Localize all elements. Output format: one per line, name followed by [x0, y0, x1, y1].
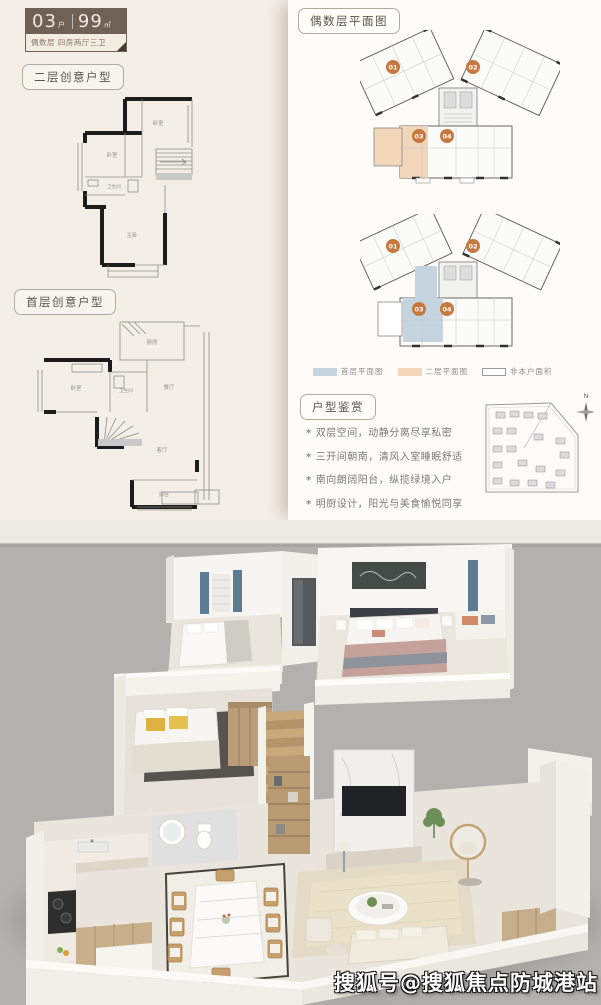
room-label-bedroom-mid: 卧室: [106, 151, 118, 159]
appreciation-item: *三开间朝南，清风入室睡眠舒适: [306, 452, 476, 464]
walls-thin: [78, 99, 192, 277]
armchair: [306, 918, 332, 942]
floor-lamp: [338, 843, 350, 851]
brochure-section: 03 户 99 ㎡ 偶数层 四房两厅三卫 二层创意户型 首层创意户型: [0, 0, 601, 520]
bullet-icon: *: [306, 452, 312, 464]
highlight-bay-even: [374, 128, 402, 166]
appreciation-item: *南向朗阔阳台，纵揽绿境入户: [306, 475, 476, 487]
dining: [166, 864, 288, 986]
compass: N: [576, 392, 594, 422]
unit-number: 03: [32, 11, 57, 32]
floor-plan-2f: 卧室 卧室 卫生间 主卧: [30, 85, 265, 285]
curtain: [233, 570, 242, 612]
walls-thin: [38, 322, 219, 510]
legend-item-second-floor: 二层平面图: [398, 366, 469, 377]
tv-screen: [342, 786, 406, 816]
badge-04-label: 04: [442, 306, 452, 314]
badge-divider: [72, 14, 73, 29]
site-road: [524, 403, 551, 448]
cooktop: [48, 890, 76, 934]
appreciation-text: 三开间朝南，清风入室睡眠舒适: [316, 452, 463, 464]
unit-suffix: 户: [58, 20, 65, 30]
toilet: [197, 831, 211, 849]
badge-04-label: 04: [442, 133, 452, 141]
site-map: N: [476, 390, 594, 508]
room-label-balcony: 阳台: [159, 491, 169, 498]
badge-03-label: 03: [414, 133, 423, 141]
isometric-render: [0, 520, 601, 1005]
floor-plan-1f: 厨房 卧室 卫生间 餐厅 客厅 阳台: [12, 312, 272, 512]
site-buildings: [493, 411, 569, 488]
legend-label-first: 首层平面图: [341, 366, 384, 377]
building-plan-even: 01 02 03 04: [360, 30, 560, 215]
unit-subtitle: 偶数层 四房两厅三卫: [26, 34, 126, 51]
room-label-bedroom-1f: 卧室: [70, 384, 82, 392]
render-section: 搜狐号@搜狐焦点防城港站: [0, 520, 601, 1005]
unit-badge: 03 户 99 ㎡ 偶数层 四房两厅三卫: [25, 8, 127, 52]
appreciation-item: *双层空间，动静分离尽享私密: [306, 428, 476, 440]
wing-right: [463, 214, 560, 290]
page: 03 户 99 ㎡ 偶数层 四房两厅三卫 二层创意户型 首层创意户型: [0, 0, 601, 1005]
sink: [78, 842, 108, 852]
bay-block: [378, 302, 402, 336]
right-panel: 偶数层平面图: [288, 0, 601, 520]
room-label-bathroom-1f: 卫生间: [119, 387, 133, 394]
bathroom: [148, 808, 238, 868]
unit-badge-main: 03 户 99 ㎡: [26, 9, 126, 34]
curtain: [468, 560, 478, 612]
legend-swatch-second: [398, 368, 422, 376]
page-edge: [0, 520, 601, 544]
bay-window: [416, 178, 430, 183]
appreciation-list: *双层空间，动静分离尽享私密 *三开间朝南，清风入室睡眠舒适 *南向朗阔阳台，纵…: [306, 428, 476, 522]
room-labels-2f: 卧室 卧室 卫生间 主卧: [106, 119, 164, 239]
room-label-bathroom-2f: 卫生间: [107, 183, 121, 190]
unit-subtitle-text: 偶数层 四房两厅三卫: [31, 38, 106, 47]
legend-swatch-first: [313, 368, 337, 376]
compass-label: N: [584, 392, 589, 400]
legend-label-second: 二层平面图: [426, 366, 469, 377]
bullet-icon: *: [306, 475, 312, 487]
legend-item-other-area: 非本户面积: [482, 366, 553, 377]
stair-landing: [156, 173, 192, 180]
legend-item-first-floor: 首层平面图: [313, 366, 384, 377]
walls-thick: [85, 99, 192, 265]
bookshelf: [268, 756, 310, 854]
legend-label-other: 非本户面积: [510, 366, 553, 377]
appreciation-text: 双层空间，动静分离尽享私密: [316, 428, 453, 440]
appreciation-text: 南向朗阔阳台，纵揽绿境入户: [316, 475, 453, 487]
bay-window: [460, 178, 474, 183]
tag-appreciation: 户型鉴赏: [300, 394, 376, 420]
room-label-dining: 餐厅: [163, 383, 175, 391]
corner-triangle-icon: [117, 42, 126, 51]
appreciation-item: *明厨设计，阳光与美食愉悦同享: [306, 499, 476, 511]
curtain: [200, 572, 209, 614]
pouf: [326, 943, 346, 957]
plant-pot: [429, 838, 439, 847]
room-label-bedroom-top: 卧室: [152, 119, 164, 127]
stair-landing: [98, 439, 142, 446]
badge-02-label: 02: [468, 243, 477, 251]
bullet-icon: *: [306, 428, 312, 440]
unit-area-unit: ㎡: [104, 20, 111, 30]
core: [439, 262, 477, 298]
bullet-icon: *: [306, 499, 312, 511]
unit-area: 99: [78, 11, 103, 32]
room-label-living: 客厅: [156, 446, 168, 454]
highlight-core-first: [415, 266, 437, 298]
badge-01-label: 01: [388, 243, 398, 251]
legend: 首层平面图 二层平面图 非本户面积: [313, 366, 581, 377]
wall-art: [352, 562, 426, 589]
wing-left: [360, 214, 452, 290]
room-label-master: 主卧: [126, 231, 138, 239]
badge-01-label: 01: [388, 64, 398, 72]
dining-table: [190, 881, 264, 968]
badge-02-label: 02: [468, 64, 477, 72]
room-label-kitchen: 厨房: [146, 338, 158, 346]
watermark: 搜狐号@搜狐焦点防城港站: [334, 967, 598, 997]
appreciation-text: 明厨设计，阳光与美食愉悦同享: [316, 499, 463, 511]
core: [439, 88, 477, 128]
legend-swatch-other: [482, 368, 506, 376]
building-plan-first: 01 02 03 04: [360, 214, 560, 364]
badge-03-label: 03: [414, 306, 423, 314]
